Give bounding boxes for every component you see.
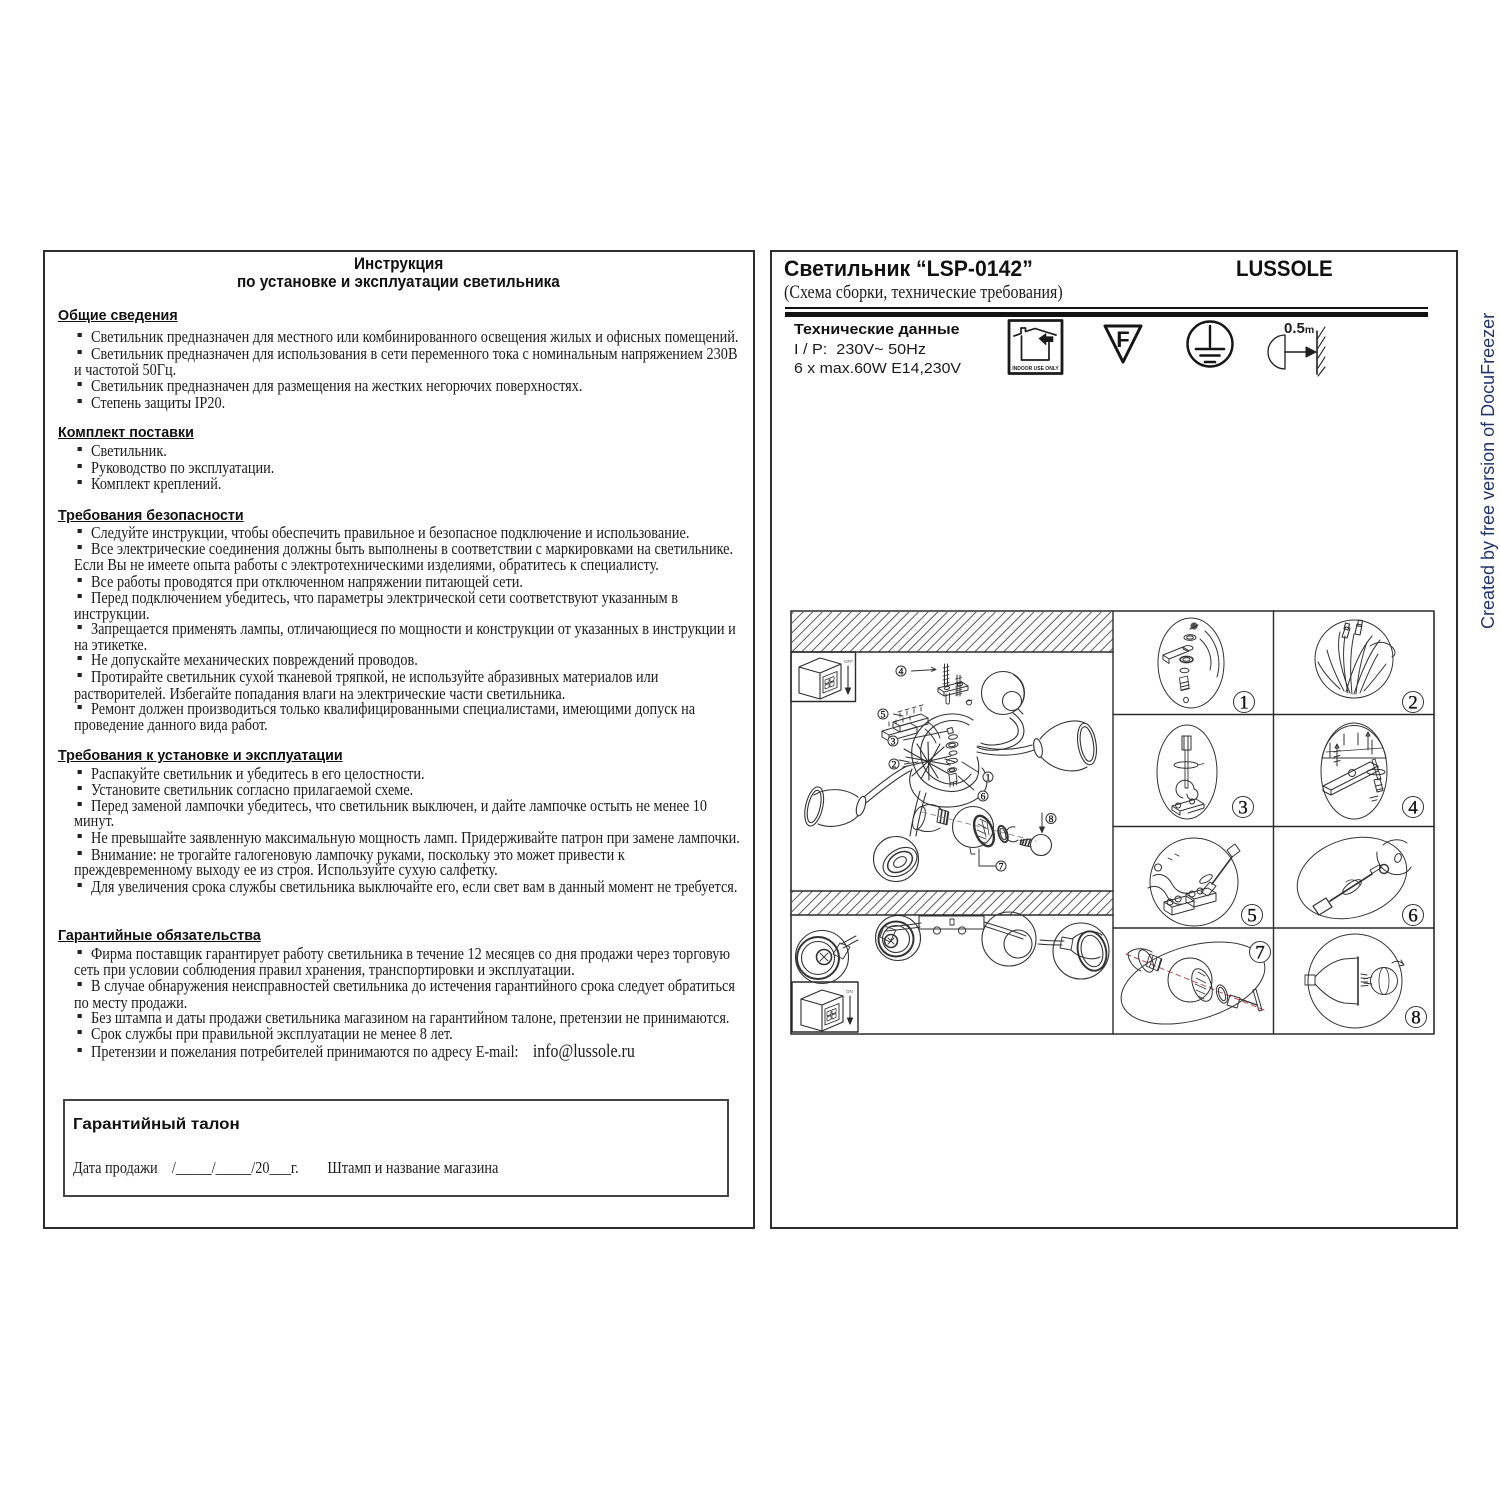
svg-text:8: 8	[1049, 815, 1054, 825]
svg-text:2: 2	[1408, 693, 1418, 714]
svg-text:7: 7	[1255, 943, 1265, 964]
svg-text:INDOOR USE ONLY: INDOOR USE ONLY	[1012, 366, 1059, 372]
svg-text:1: 1	[1239, 693, 1249, 714]
svg-text:3: 3	[1238, 798, 1248, 819]
svg-text:F: F	[1116, 327, 1129, 352]
svg-text:8: 8	[1411, 1008, 1421, 1029]
svg-text:6: 6	[981, 793, 986, 803]
svg-text:7: 7	[999, 863, 1004, 873]
svg-text:2: 2	[892, 761, 897, 771]
svg-text:0.5m: 0.5m	[1284, 320, 1314, 337]
svg-text:5: 5	[1247, 906, 1257, 927]
svg-text:1: 1	[986, 774, 991, 784]
svg-text:OFF: OFF	[844, 659, 853, 664]
svg-text:6: 6	[1408, 906, 1418, 927]
svg-text:4: 4	[899, 668, 904, 678]
svg-text:3: 3	[891, 738, 896, 748]
svg-text:4: 4	[1408, 798, 1418, 819]
svg-text:ON: ON	[846, 989, 853, 994]
svg-text:5: 5	[881, 711, 886, 721]
